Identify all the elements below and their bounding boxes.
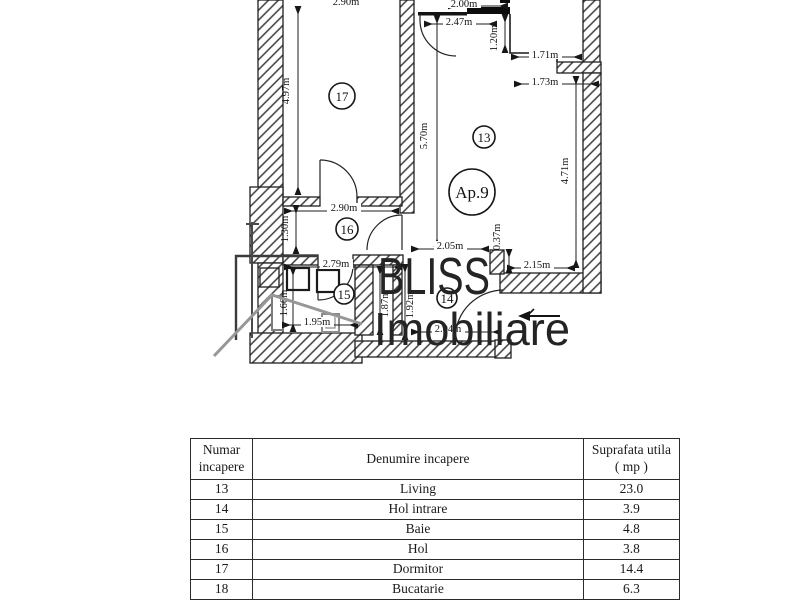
- wall-middle: [400, 0, 414, 213]
- cell-room-name: Baie: [253, 520, 584, 540]
- header-denumire-incapere: Denumire incapere: [253, 439, 584, 480]
- table-row: 14 Hol intrare 3.9: [191, 500, 680, 520]
- room-number-16: 16: [341, 222, 355, 237]
- dim-1-73: 1.73m: [532, 77, 559, 88]
- cell-room-name: Dormitor: [253, 560, 584, 580]
- header-numar-line2: incapere: [191, 459, 252, 476]
- cell-room-number: 16: [191, 540, 253, 560]
- dim-top-partial: 2.90m: [333, 0, 360, 8]
- room-number-15: 15: [338, 287, 351, 302]
- cell-room-name: Hol intrare: [253, 500, 584, 520]
- door-room16-hall: [367, 215, 402, 250]
- scanned-floorplan-page: 2.90m 2.00m 2.47m 1.20m 1.71m 1.73m 4.97…: [0, 0, 800, 600]
- dim-2-00: 2.00m: [451, 0, 478, 10]
- cell-room-area: 6.3: [583, 580, 679, 600]
- wall-17-16-left: [283, 197, 320, 206]
- dim-2-47: 2.47m: [446, 17, 473, 28]
- cell-room-area: 14.4: [583, 560, 679, 580]
- header-suprafata-line2: ( mp ): [584, 459, 679, 476]
- dim-1-30: 1.30m: [280, 216, 291, 243]
- table-header-row: Numar incapere Denumire incapere Suprafa…: [191, 439, 680, 480]
- cell-room-name: Bucatarie: [253, 580, 584, 600]
- logo-brand-text: BLISS: [378, 248, 490, 306]
- cell-room-area: 4.8: [583, 520, 679, 540]
- table-row: 18 Bucatarie 6.3: [191, 580, 680, 600]
- table-row: 13 Living 23.0: [191, 480, 680, 500]
- cell-room-number: 14: [191, 500, 253, 520]
- header-numar-incapere: Numar incapere: [191, 439, 253, 480]
- top-edge-mark: [500, 0, 510, 3]
- dim-5-70: 5.70m: [419, 123, 430, 150]
- cell-room-area: 3.9: [583, 500, 679, 520]
- dim-0-37: 0.37m: [492, 224, 503, 251]
- dim-1-71: 1.71m: [532, 50, 559, 61]
- dim-1-95: 1.95m: [304, 317, 331, 328]
- wall-right-step: [557, 62, 601, 73]
- dim-4-97: 4.97m: [281, 78, 292, 105]
- room-area-table: Numar incapere Denumire incapere Suprafa…: [190, 438, 680, 600]
- cell-room-number: 15: [191, 520, 253, 540]
- wall-left-upper: [258, 0, 283, 197]
- dim-2-79: 2.79m: [323, 259, 350, 270]
- header-suprafata-utila: Suprafata utila ( mp ): [583, 439, 679, 480]
- dim-4-71: 4.71m: [560, 158, 571, 185]
- logo-subtitle-text: Imobiliare: [374, 303, 570, 355]
- door-room17: [320, 160, 357, 197]
- wall-17-16-right: [357, 197, 402, 206]
- table-row: 16 Hol 3.8: [191, 540, 680, 560]
- cell-room-area: 23.0: [583, 480, 679, 500]
- table-row: 15 Baie 4.8: [191, 520, 680, 540]
- table-row: 17 Dormitor 14.4: [191, 560, 680, 580]
- cell-room-name: Hol: [253, 540, 584, 560]
- dim-2-90: 2.90m: [331, 203, 358, 214]
- dim-2-15: 2.15m: [524, 260, 551, 271]
- dim-1-20: 1.20m: [489, 25, 500, 52]
- wall-top-line: [418, 12, 467, 16]
- header-suprafata-line1: Suprafata utila: [584, 442, 679, 459]
- cell-room-number: 17: [191, 560, 253, 580]
- wall-bottom-left: [250, 333, 362, 363]
- bath-pier: [260, 268, 279, 287]
- cell-room-number: 13: [191, 480, 253, 500]
- header-numar-line1: Numar: [191, 442, 252, 459]
- wall-right-main: [583, 73, 601, 293]
- cell-room-name: Living: [253, 480, 584, 500]
- apartment-label: Ap.9: [455, 183, 489, 202]
- cell-room-area: 3.8: [583, 540, 679, 560]
- room-number-13: 13: [478, 130, 491, 145]
- dim-1-66: 1.66m: [279, 290, 290, 317]
- cell-room-number: 18: [191, 580, 253, 600]
- wall-right-upper: [583, 0, 600, 63]
- room-number-17: 17: [336, 89, 350, 104]
- fixture-sink-1: [287, 268, 309, 290]
- wall-13-14-stub: [490, 250, 504, 274]
- wall-15-14-a: [355, 265, 373, 335]
